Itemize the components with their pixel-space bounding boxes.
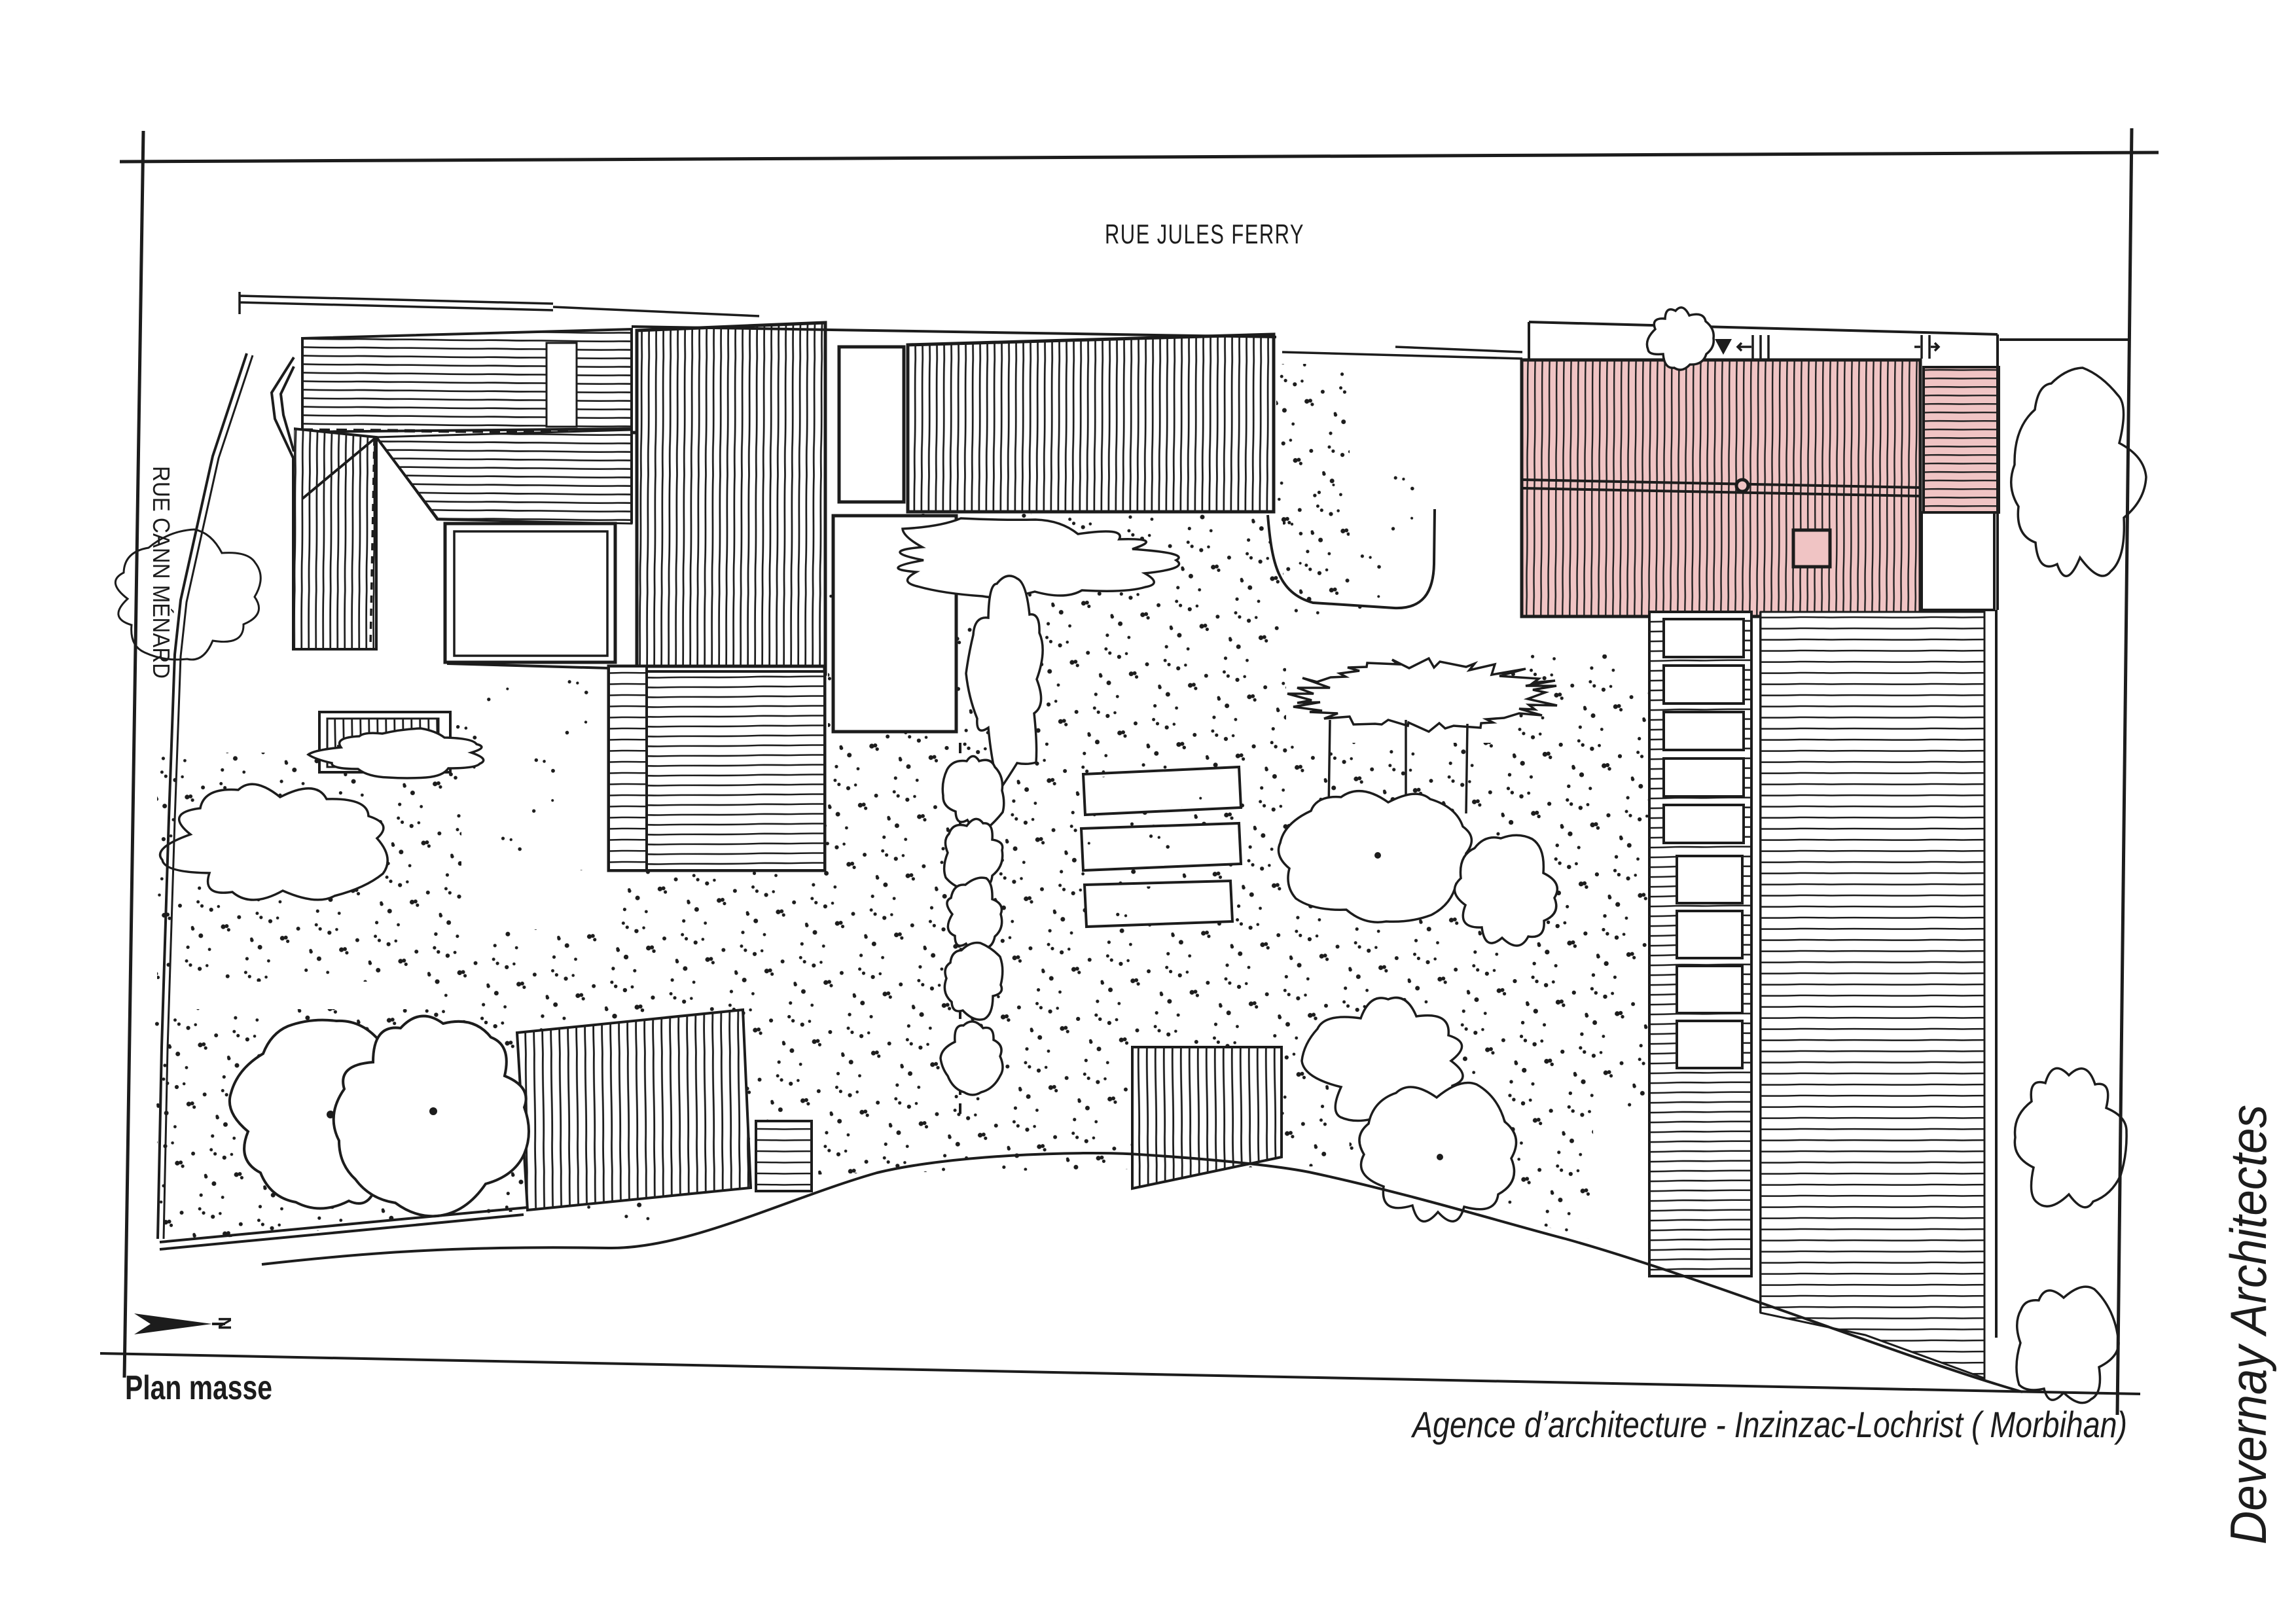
svg-text:N: N <box>215 1317 235 1330</box>
svg-text:Agence d’architecture - Inzinz: Agence d’architecture - Inzinzac-Lochris… <box>1411 1404 2127 1445</box>
svg-text:RUE JULES FERRY: RUE JULES FERRY <box>1105 219 1304 249</box>
svg-text:Plan masse: Plan masse <box>125 1369 272 1407</box>
svg-text:Devernay Architectes: Devernay Architectes <box>2219 1105 2277 1544</box>
svg-text:RUE CANN MÉNARD: RUE CANN MÉNARD <box>148 466 175 679</box>
